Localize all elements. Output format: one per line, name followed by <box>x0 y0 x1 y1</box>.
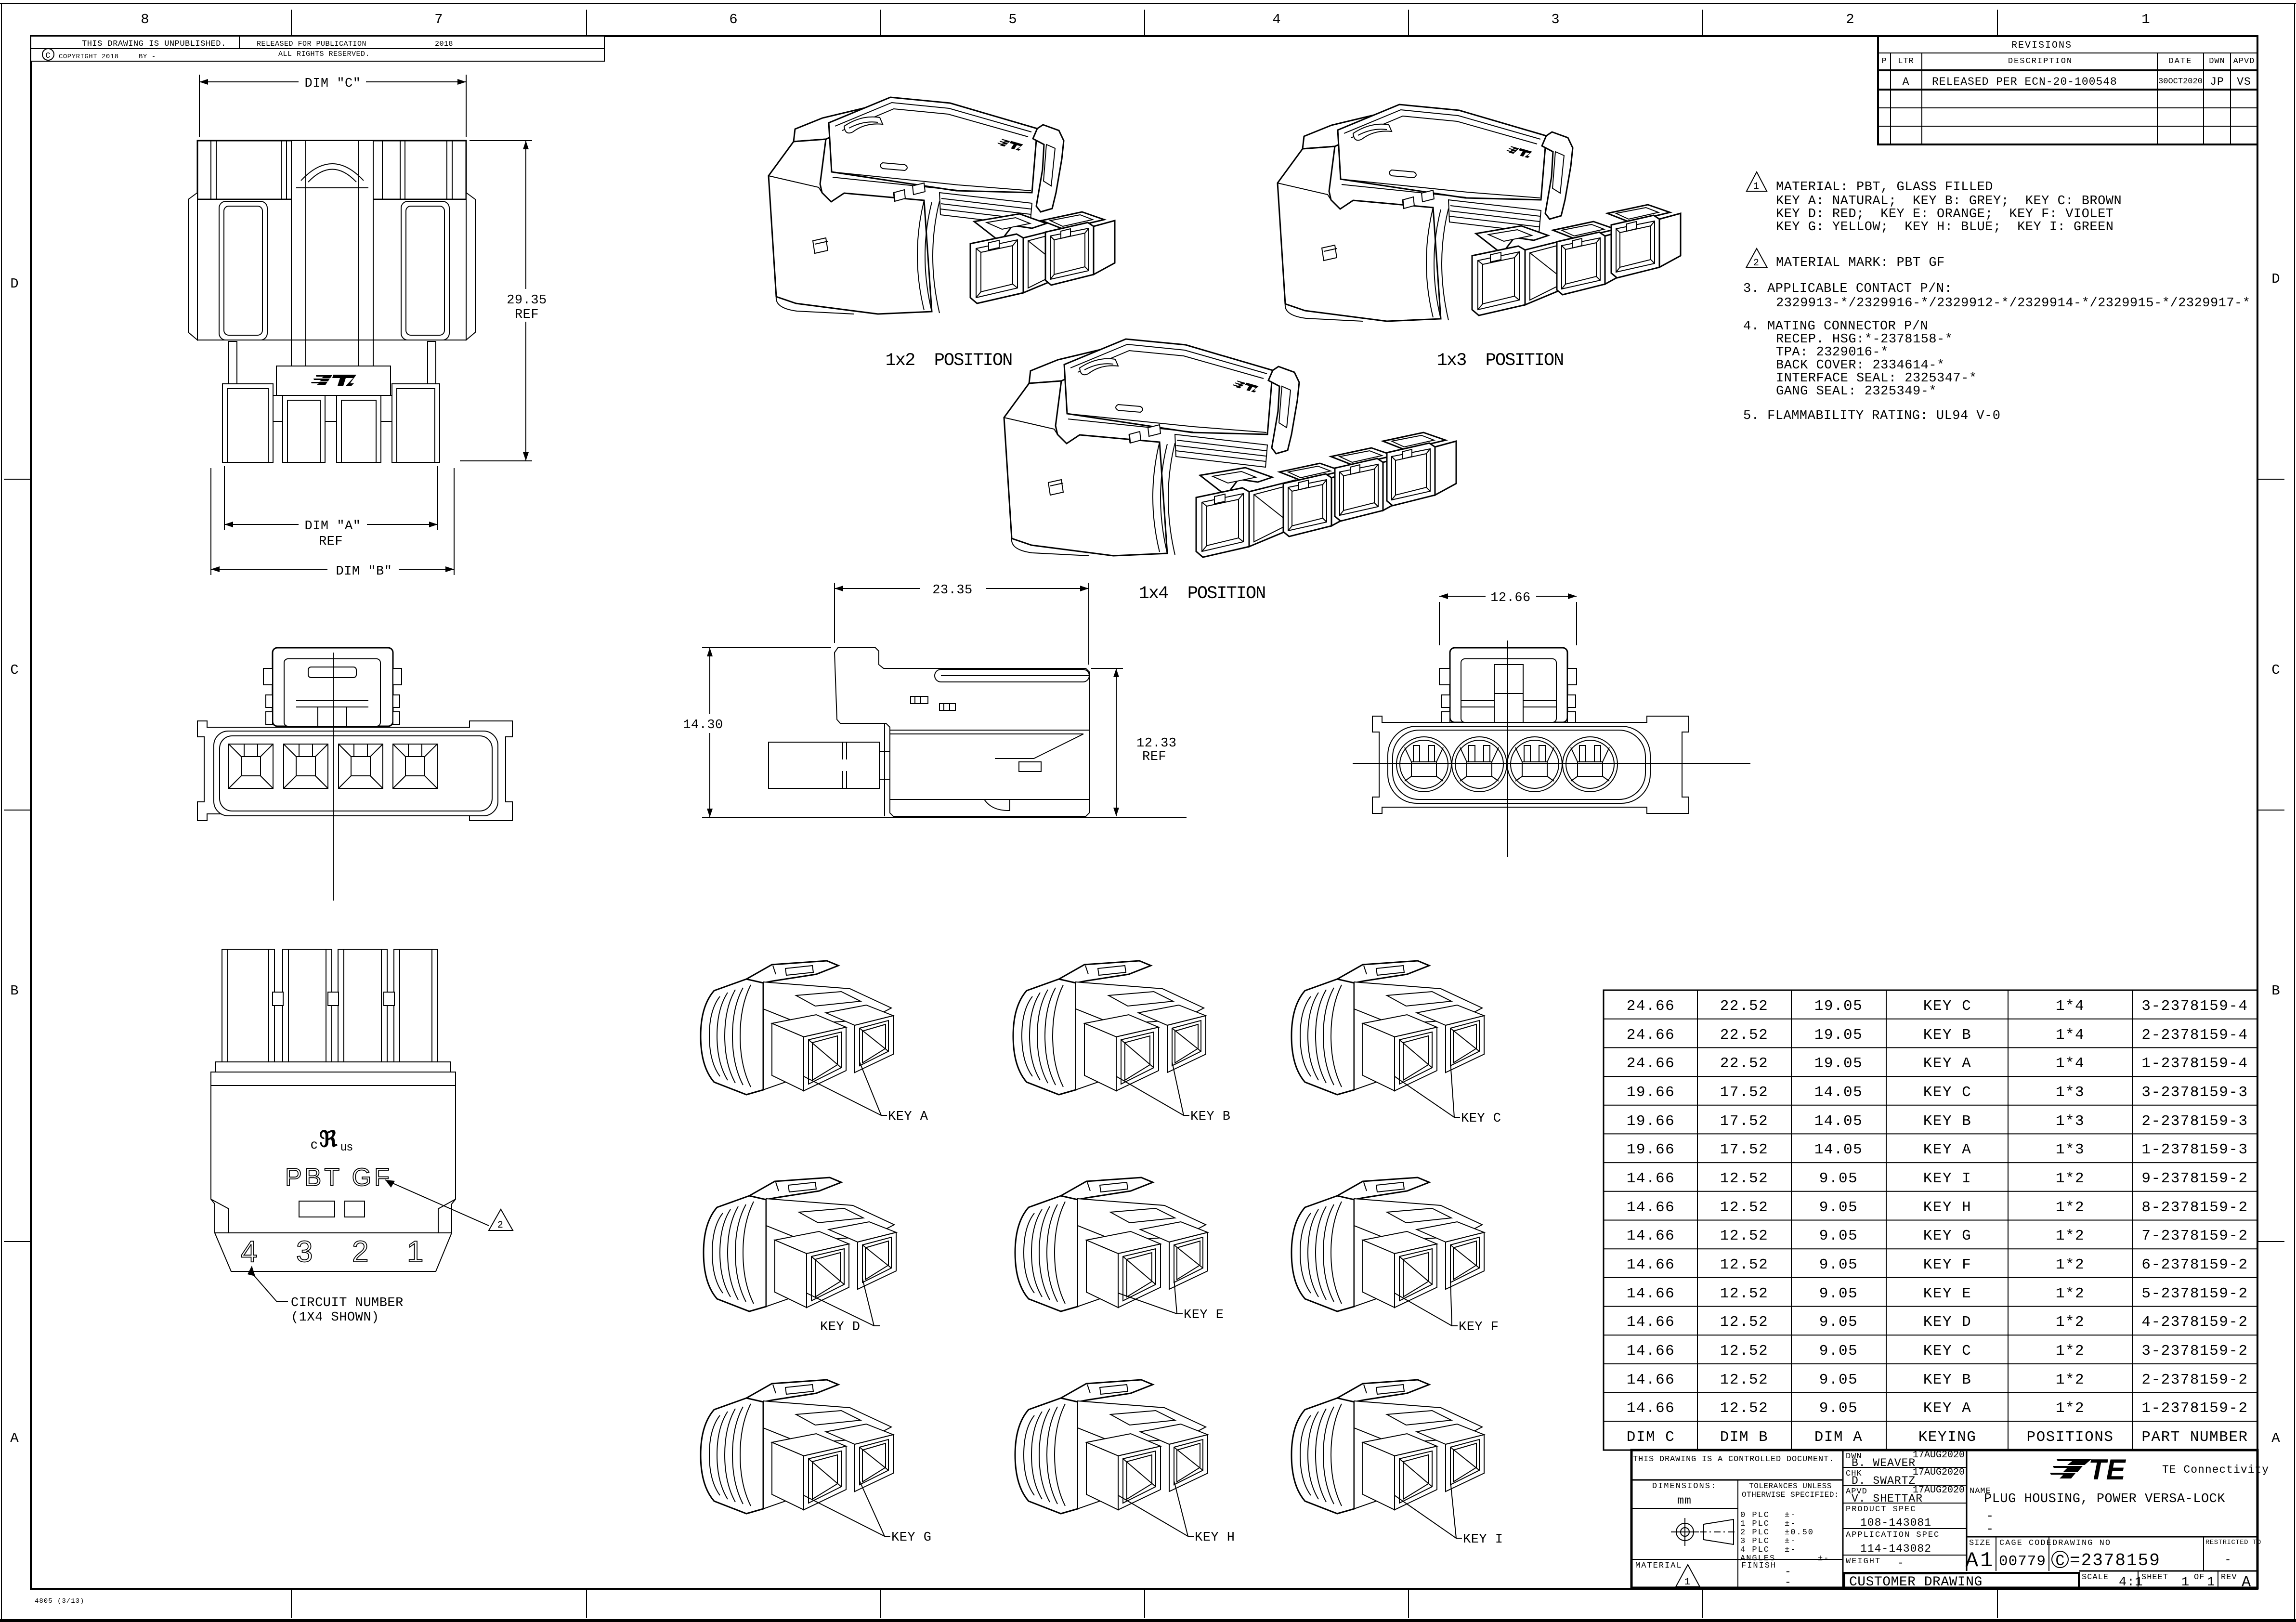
svg-text:DIM "C": DIM "C" <box>305 77 361 91</box>
svg-text:KEY B: KEY B <box>1923 1113 1972 1130</box>
svg-text:12.52: 12.52 <box>1720 1228 1769 1244</box>
svg-text:DIMENSIONS:: DIMENSIONS: <box>1652 1482 1717 1491</box>
svg-text:-: - <box>1897 1557 1905 1570</box>
svg-text:KEY B: KEY B <box>1923 1372 1972 1388</box>
svg-text:2329913-*/2329916-*/2329912-*/: 2329913-*/2329916-*/2329912-*/2329914-*/… <box>1776 296 2250 311</box>
svg-text:1: 1 <box>1753 181 1760 192</box>
svg-text:14.05: 14.05 <box>1814 1084 1863 1101</box>
svg-text:B. WEAVER: B. WEAVER <box>1852 1457 1916 1469</box>
svg-text:D: D <box>10 276 18 292</box>
svg-text:22.52: 22.52 <box>1720 1055 1769 1072</box>
svg-text:KEY I: KEY I <box>1923 1170 1972 1187</box>
svg-text:22.52: 22.52 <box>1720 1027 1769 1044</box>
svg-text:DIM C: DIM C <box>1627 1429 1675 1446</box>
svg-text:0 PLC: 0 PLC <box>1740 1511 1770 1520</box>
svg-text:12.52: 12.52 <box>1720 1343 1769 1360</box>
svg-text:DIM "A": DIM "A" <box>305 519 361 534</box>
svg-text:19.66: 19.66 <box>1627 1141 1675 1158</box>
svg-text:19.05: 19.05 <box>1814 1027 1863 1044</box>
svg-text:BY -: BY - <box>139 53 156 61</box>
svg-text:DIM A: DIM A <box>1814 1429 1863 1446</box>
svg-text:A: A <box>2271 1430 2280 1446</box>
svg-text:9.05: 9.05 <box>1819 1314 1858 1331</box>
svg-text:KEY G: YELLOW; KEY H: BLUE;: KEY G: YELLOW; KEY H: BLUE; KEY I: GREEN <box>1776 220 2114 235</box>
svg-text:BACK COVER: 2334614-*: BACK COVER: 2334614-* <box>1776 358 1945 373</box>
svg-text:TOLERANCES UNLESS: TOLERANCES UNLESS <box>1749 1482 1832 1491</box>
svg-text:7: 7 <box>434 12 443 27</box>
svg-text:C: C <box>2271 662 2280 678</box>
svg-text:4-2378159-2: 4-2378159-2 <box>2141 1314 2248 1331</box>
svg-text:4 PLC: 4 PLC <box>1740 1545 1770 1555</box>
svg-text:7-2378159-2: 7-2378159-2 <box>2141 1228 2248 1244</box>
svg-text:1*4: 1*4 <box>2056 1055 2085 1072</box>
svg-text:17.52: 17.52 <box>1720 1084 1769 1101</box>
svg-text:RELEASED FOR PUBLICATION: RELEASED FOR PUBLICATION <box>257 40 366 48</box>
svg-text:00779: 00779 <box>1999 1553 2046 1570</box>
svg-text:KEY F: KEY F <box>1923 1256 1972 1273</box>
svg-text:2 PLC: 2 PLC <box>1740 1528 1770 1537</box>
svg-text:3. APPLICABLE CONTACT P/N:: 3. APPLICABLE CONTACT P/N: <box>1743 282 1952 296</box>
svg-text:17.52: 17.52 <box>1720 1141 1769 1158</box>
svg-text:PRODUCT SPEC: PRODUCT SPEC <box>1846 1505 1916 1514</box>
svg-text:9.05: 9.05 <box>1819 1170 1858 1187</box>
svg-text:TE Connectivity: TE Connectivity <box>2162 1464 2269 1476</box>
svg-text:RECEP. HSG:*-2378158-*: RECEP. HSG:*-2378158-* <box>1776 332 1953 347</box>
svg-text:2018: 2018 <box>435 40 453 48</box>
svg-text:POSITIONS: POSITIONS <box>2027 1429 2114 1446</box>
svg-text:MATERIAL: PBT, GLASS FILLED: MATERIAL: PBT, GLASS FILLED <box>1776 180 1993 195</box>
svg-text:RESTRICTED TO: RESTRICTED TO <box>2205 1539 2261 1546</box>
svg-text:-: - <box>1986 1509 1994 1524</box>
svg-text:12.52: 12.52 <box>1720 1170 1769 1187</box>
svg-text:9.05: 9.05 <box>1819 1256 1858 1273</box>
svg-text:3 PLC: 3 PLC <box>1740 1537 1770 1546</box>
svg-text:KEY A: KEY A <box>1923 1055 1972 1072</box>
svg-text:14.66: 14.66 <box>1627 1285 1675 1302</box>
svg-text:KEY D: KEY D <box>1923 1314 1972 1331</box>
svg-text:KEY F: KEY F <box>1459 1320 1499 1334</box>
svg-text:C: C <box>45 52 51 61</box>
svg-text:c: c <box>311 1137 317 1151</box>
svg-text:17.52: 17.52 <box>1720 1113 1769 1130</box>
svg-text:KEY G: KEY G <box>891 1530 932 1545</box>
svg-text:2: 2 <box>1753 258 1760 269</box>
svg-text:KEY E: KEY E <box>1184 1308 1224 1322</box>
svg-text:6: 6 <box>729 12 737 27</box>
svg-text:KEY B: KEY B <box>1923 1027 1972 1044</box>
svg-text:1*2: 1*2 <box>2056 1285 2085 1302</box>
svg-text:SIZE: SIZE <box>1969 1539 1991 1548</box>
svg-text:D. SWARTZ: D. SWARTZ <box>1852 1475 1916 1487</box>
svg-text:2: 2 <box>1846 12 1854 27</box>
svg-text:DWN: DWN <box>2209 57 2225 66</box>
svg-text:PBT GF: PBT GF <box>285 1164 392 1191</box>
svg-text:19.05: 19.05 <box>1814 1055 1863 1072</box>
svg-text:DIM B: DIM B <box>1720 1429 1769 1446</box>
svg-text:14.66: 14.66 <box>1627 1343 1675 1360</box>
svg-text:KEY A: KEY A <box>888 1110 928 1124</box>
svg-text:14.66: 14.66 <box>1627 1372 1675 1388</box>
svg-text:LTR: LTR <box>1898 57 1914 66</box>
svg-text:PLUG HOUSING, POWER VERSA-LOCK: PLUG HOUSING, POWER VERSA-LOCK <box>1984 1492 2225 1506</box>
svg-text:5. FLAMMABILITY RATING: UL94 V: 5. FLAMMABILITY RATING: UL94 V-0 <box>1743 409 2000 423</box>
svg-text:30OCT2020: 30OCT2020 <box>2158 77 2203 86</box>
svg-text:DIM "B": DIM "B" <box>336 564 392 579</box>
svg-text:2-2378159-2: 2-2378159-2 <box>2141 1372 2248 1388</box>
svg-text:3-2378159-4: 3-2378159-4 <box>2141 998 2248 1015</box>
svg-text:REVISIONS: REVISIONS <box>2011 40 2072 51</box>
svg-text:2: 2 <box>352 1235 368 1269</box>
svg-text:108-143081: 108-143081 <box>1860 1517 1931 1529</box>
svg-text:8-2378159-2: 8-2378159-2 <box>2141 1199 2248 1216</box>
svg-text:(1X4 SHOWN): (1X4 SHOWN) <box>291 1310 379 1325</box>
svg-text:114-143082: 114-143082 <box>1860 1543 1931 1555</box>
svg-text:A1: A1 <box>1966 1549 1995 1573</box>
svg-text:OTHERWISE SPECIFIED:: OTHERWISE SPECIFIED: <box>1742 1491 1839 1499</box>
svg-text:-: - <box>1785 1576 1792 1589</box>
svg-text:DRAWING NO: DRAWING NO <box>2052 1539 2111 1548</box>
svg-text:3-2378159-3: 3-2378159-3 <box>2141 1084 2248 1101</box>
svg-text:17AUG2020: 17AUG2020 <box>1913 1485 1965 1496</box>
svg-text:KEY D: KEY D <box>820 1320 861 1334</box>
svg-text:2-2378159-3: 2-2378159-3 <box>2141 1113 2248 1130</box>
svg-text:1: 1 <box>407 1235 423 1269</box>
svg-text:OF: OF <box>2194 1573 2205 1582</box>
svg-text:1*2: 1*2 <box>2056 1170 2085 1187</box>
svg-text:KEY B: KEY B <box>1190 1110 1231 1124</box>
svg-text:4: 4 <box>241 1235 257 1269</box>
svg-text:14.66: 14.66 <box>1627 1228 1675 1244</box>
svg-text:1*3: 1*3 <box>2056 1084 2085 1101</box>
svg-text:12.33: 12.33 <box>1136 736 1177 751</box>
svg-text:KEY A: NATURAL; KEY B: GREY;: KEY A: NATURAL; KEY B: GREY; KEY C: BROW… <box>1776 194 2122 209</box>
svg-text:17AUG2020: 17AUG2020 <box>1913 1450 1965 1461</box>
svg-text:24.66: 24.66 <box>1627 1055 1675 1072</box>
svg-text:MATERIAL MARK: PBT GF: MATERIAL MARK: PBT GF <box>1776 256 1945 270</box>
svg-text:KEY I: KEY I <box>1463 1532 1503 1547</box>
svg-text:14.66: 14.66 <box>1627 1256 1675 1273</box>
svg-text:14.05: 14.05 <box>1814 1141 1863 1158</box>
svg-text:1 PLC: 1 PLC <box>1740 1519 1770 1529</box>
svg-text:-: - <box>2225 1554 2232 1566</box>
svg-text:=2378159: =2378159 <box>2070 1551 2161 1570</box>
svg-text:5-2378159-2: 5-2378159-2 <box>2141 1285 2248 1302</box>
svg-text:6-2378159-2: 6-2378159-2 <box>2141 1256 2248 1273</box>
svg-text:3-2378159-2: 3-2378159-2 <box>2141 1343 2248 1360</box>
svg-text:24.66: 24.66 <box>1627 998 1675 1015</box>
svg-text:WEIGHT: WEIGHT <box>1846 1557 1881 1566</box>
svg-text:KEY A: KEY A <box>1923 1141 1972 1158</box>
svg-text:KEY C: KEY C <box>1923 1084 1972 1101</box>
svg-text:A: A <box>2242 1573 2251 1591</box>
svg-text:1*2: 1*2 <box>2056 1372 2085 1388</box>
svg-text:1x2 POSITION: 1x2 POSITION <box>886 351 1012 371</box>
svg-text:KEY G: KEY G <box>1923 1228 1972 1244</box>
svg-text:REF: REF <box>319 535 343 549</box>
svg-text:1*4: 1*4 <box>2056 1027 2085 1044</box>
svg-text:17AUG2020: 17AUG2020 <box>1913 1467 1965 1478</box>
svg-text:us: us <box>340 1140 352 1153</box>
svg-text:2: 2 <box>497 1220 504 1231</box>
svg-text:DATE: DATE <box>2169 57 2192 66</box>
svg-text:A: A <box>1903 76 1910 88</box>
svg-text:INTERFACE SEAL: 2325347-*: INTERFACE SEAL: 2325347-* <box>1776 371 1977 386</box>
svg-text:5: 5 <box>1008 12 1017 27</box>
svg-text:±-: ±- <box>1785 1537 1796 1546</box>
svg-text:12.52: 12.52 <box>1720 1256 1769 1273</box>
svg-text:V. SHETTAR: V. SHETTAR <box>1852 1492 1923 1505</box>
svg-text:1x4 POSITION: 1x4 POSITION <box>1139 584 1265 604</box>
svg-text:14.66: 14.66 <box>1627 1400 1675 1417</box>
svg-text:APVD: APVD <box>2233 57 2255 66</box>
svg-text:9.05: 9.05 <box>1819 1228 1858 1244</box>
svg-text:1*3: 1*3 <box>2056 1113 2085 1130</box>
svg-text:APPLICATION SPEC: APPLICATION SPEC <box>1846 1530 1940 1540</box>
svg-text:SHEET: SHEET <box>2141 1573 2168 1582</box>
svg-text:ALL RIGHTS RESERVED.: ALL RIGHTS RESERVED. <box>278 50 370 58</box>
svg-text:REF: REF <box>515 308 539 322</box>
svg-text:±-: ±- <box>1785 1519 1796 1529</box>
svg-text:mm: mm <box>1677 1494 1692 1507</box>
svg-text:9.05: 9.05 <box>1819 1199 1858 1216</box>
svg-text:-: - <box>1986 1522 1994 1537</box>
svg-text:SCALE: SCALE <box>2082 1573 2109 1582</box>
svg-text:3: 3 <box>296 1235 313 1269</box>
svg-text:1*2: 1*2 <box>2056 1228 2085 1244</box>
svg-text:19.05: 19.05 <box>1814 998 1863 1015</box>
svg-text:COPYRIGHT 2018: COPYRIGHT 2018 <box>59 53 119 61</box>
svg-text:1*2: 1*2 <box>2056 1400 2085 1417</box>
svg-text:±-: ±- <box>1818 1554 1829 1563</box>
svg-text:1-2378159-3: 1-2378159-3 <box>2141 1141 2248 1158</box>
svg-text:C: C <box>10 662 18 678</box>
svg-text:4: 4 <box>1272 12 1280 27</box>
svg-text:19.66: 19.66 <box>1627 1084 1675 1101</box>
svg-text:3: 3 <box>1551 12 1559 27</box>
svg-text:KEYING: KEYING <box>1918 1429 1977 1446</box>
svg-text:29.35: 29.35 <box>507 293 547 308</box>
svg-text:KEY C: KEY C <box>1923 998 1972 1015</box>
svg-text:B: B <box>10 983 18 999</box>
svg-text:14.66: 14.66 <box>1627 1170 1675 1187</box>
svg-text:23.35: 23.35 <box>932 583 973 598</box>
svg-text:1*4: 1*4 <box>2056 998 2085 1015</box>
svg-text:VS: VS <box>2237 76 2251 88</box>
svg-text:1*2: 1*2 <box>2056 1314 2085 1331</box>
svg-text:KEY C: KEY C <box>1461 1112 1501 1126</box>
svg-text:1: 1 <box>2141 12 2150 27</box>
svg-text:REV: REV <box>2221 1573 2237 1582</box>
svg-text:ℜ: ℜ <box>319 1127 338 1151</box>
svg-text:9.05: 9.05 <box>1819 1400 1858 1417</box>
svg-text:12.52: 12.52 <box>1720 1285 1769 1302</box>
svg-text:D: D <box>2271 271 2280 287</box>
svg-text:THIS DRAWING IS UNPUBLISHED.: THIS DRAWING IS UNPUBLISHED. <box>82 39 226 49</box>
svg-text:MATERIAL: MATERIAL <box>1635 1561 1683 1570</box>
svg-text:24.66: 24.66 <box>1627 1027 1675 1044</box>
svg-text:FINISH: FINISH <box>1741 1561 1776 1570</box>
svg-text:PART NUMBER: PART NUMBER <box>2141 1429 2248 1446</box>
svg-text:CAGE CODE: CAGE CODE <box>1999 1539 2052 1548</box>
svg-text:19.66: 19.66 <box>1627 1113 1675 1130</box>
svg-text:±0.50: ±0.50 <box>1785 1528 1814 1537</box>
svg-text:THIS DRAWING IS A CONTROLLED D: THIS DRAWING IS A CONTROLLED DOCUMENT. <box>1633 1455 1834 1464</box>
svg-text:4:1: 4:1 <box>2119 1575 2143 1590</box>
svg-text:GANG SEAL: 2325349-*: GANG SEAL: 2325349-* <box>1776 384 1937 399</box>
svg-text:±-: ±- <box>1785 1545 1796 1555</box>
svg-text:A: A <box>10 1430 19 1446</box>
svg-text:8: 8 <box>141 12 149 27</box>
svg-text:1-2378159-4: 1-2378159-4 <box>2141 1055 2248 1072</box>
svg-text:RELEASED PER ECN-20-100548: RELEASED PER ECN-20-100548 <box>1932 76 2117 88</box>
svg-text:B: B <box>2271 983 2280 999</box>
svg-text:KEY H: KEY H <box>1195 1530 1235 1545</box>
svg-text:±-: ±- <box>1785 1511 1796 1520</box>
svg-text:1*2: 1*2 <box>2056 1256 2085 1273</box>
svg-text:9.05: 9.05 <box>1819 1343 1858 1360</box>
svg-text:KEY A: KEY A <box>1923 1400 1972 1417</box>
svg-text:DESCRIPTION: DESCRIPTION <box>2008 57 2073 66</box>
svg-text:1x3 POSITION: 1x3 POSITION <box>1437 351 1564 371</box>
svg-text:14.66: 14.66 <box>1627 1199 1675 1216</box>
svg-text:TE: TE <box>2088 1453 2126 1486</box>
svg-text:12.52: 12.52 <box>1720 1314 1769 1331</box>
svg-text:12.52: 12.52 <box>1720 1400 1769 1417</box>
svg-text:12.66: 12.66 <box>1490 591 1531 605</box>
svg-text:P: P <box>1881 57 1887 66</box>
svg-text:KEY D: RED; KEY E: ORANGE; K: KEY D: RED; KEY E: ORANGE; KEY F: VIOLET <box>1776 207 2114 222</box>
svg-text:9.05: 9.05 <box>1819 1285 1858 1302</box>
svg-text:1*2: 1*2 <box>2056 1199 2085 1216</box>
svg-text:14.05: 14.05 <box>1814 1113 1863 1130</box>
svg-text:1*3: 1*3 <box>2056 1141 2085 1158</box>
svg-text:TPA: 2329016-*: TPA: 2329016-* <box>1776 345 1889 360</box>
svg-text:1: 1 <box>1684 1577 1691 1588</box>
svg-text:12.52: 12.52 <box>1720 1199 1769 1216</box>
svg-text:2-2378159-4: 2-2378159-4 <box>2141 1027 2248 1044</box>
svg-text:1*2: 1*2 <box>2056 1343 2085 1360</box>
svg-text:9.05: 9.05 <box>1819 1372 1858 1388</box>
svg-text:JP: JP <box>2210 76 2224 88</box>
svg-text:C: C <box>2055 1552 2064 1570</box>
svg-text:12.52: 12.52 <box>1720 1372 1769 1388</box>
svg-text:14.66: 14.66 <box>1627 1314 1675 1331</box>
svg-text:14.30: 14.30 <box>683 718 723 733</box>
svg-text:4. MATING CONNECTOR P/N: 4. MATING CONNECTOR P/N <box>1743 319 1928 334</box>
svg-text:4805 (3/13): 4805 (3/13) <box>35 1597 84 1605</box>
svg-text:KEY H: KEY H <box>1923 1199 1972 1216</box>
svg-text:REF: REF <box>1142 750 1166 764</box>
svg-text:1: 1 <box>2207 1575 2215 1590</box>
svg-text:22.52: 22.52 <box>1720 998 1769 1015</box>
svg-text:1: 1 <box>2181 1575 2190 1590</box>
svg-text:KEY E: KEY E <box>1923 1285 1972 1302</box>
svg-text:9-2378159-2: 9-2378159-2 <box>2141 1170 2248 1187</box>
svg-text:CIRCUIT NUMBER: CIRCUIT NUMBER <box>291 1296 404 1310</box>
svg-text:KEY C: KEY C <box>1923 1343 1972 1360</box>
svg-text:CUSTOMER DRAWING: CUSTOMER DRAWING <box>1849 1575 1983 1590</box>
svg-text:1-2378159-2: 1-2378159-2 <box>2141 1400 2248 1417</box>
